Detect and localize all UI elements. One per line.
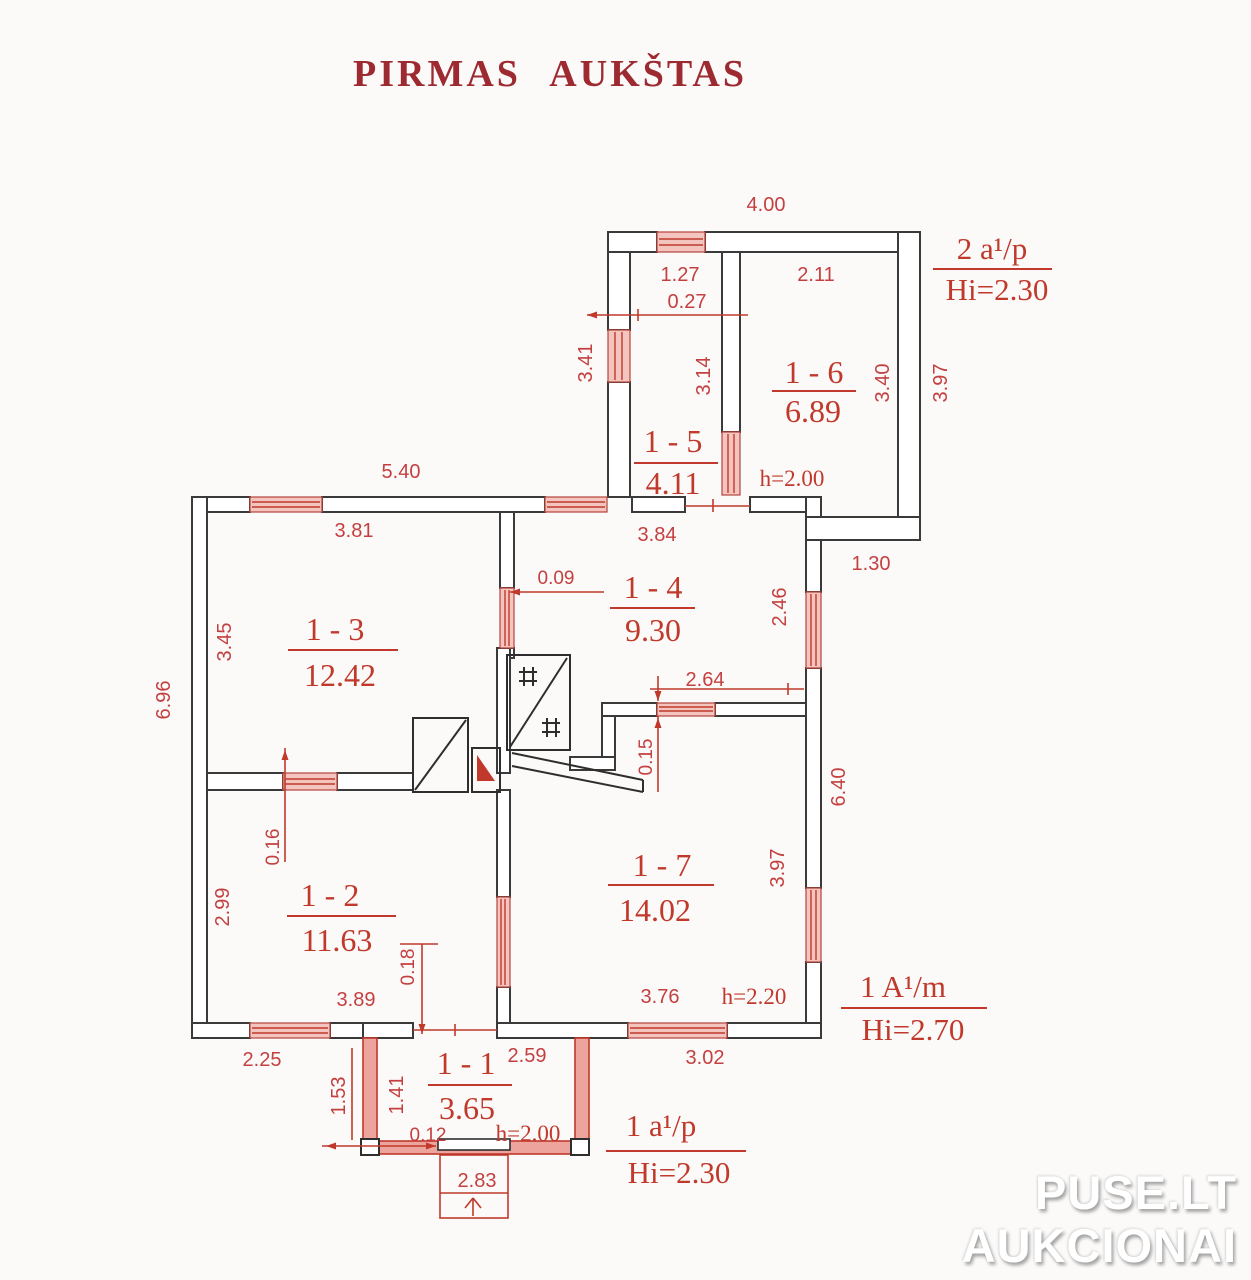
dim-1-41: 1.41 xyxy=(386,1076,408,1115)
dim-3-97-room7: 3.97 xyxy=(767,849,789,888)
dim-3-76: 3.76 xyxy=(641,986,680,1008)
dim-3-89: 3.89 xyxy=(337,989,376,1011)
dim-3-81: 3.81 xyxy=(335,520,374,542)
floorplan-drawing: 1 - 6 6.89 1 - 5 4.11 1 - 4 9.30 1 - 3 1… xyxy=(0,0,1251,1280)
dim-2-99: 2.99 xyxy=(212,888,234,927)
zone-main-height: Hi=2.70 xyxy=(862,1012,965,1047)
room-1-5-area: 4.11 xyxy=(646,465,701,501)
dim-2-64: 2.64 xyxy=(686,669,725,691)
dim-h-2-00-annex: h=2.00 xyxy=(760,466,825,491)
dim-5-40: 5.40 xyxy=(382,461,421,483)
dim-h-2-00-porch: h=2.00 xyxy=(496,1121,561,1146)
dim-3-84: 3.84 xyxy=(638,524,677,546)
page-title: PIRMAS AUKŠTAS xyxy=(0,52,1100,96)
dim-6-40: 6.40 xyxy=(828,768,850,807)
zone-porch-height: Hi=2.30 xyxy=(628,1155,731,1190)
dim-1-30: 1.30 xyxy=(852,553,891,575)
room-1-4-id: 1 - 4 xyxy=(624,569,683,605)
dim-2-11: 2.11 xyxy=(797,264,834,286)
room-1-7-area: 14.02 xyxy=(619,892,691,928)
room-1-1-area: 3.65 xyxy=(439,1090,495,1126)
dim-0-16: 0.16 xyxy=(263,829,284,866)
dim-2-83: 2.83 xyxy=(458,1170,497,1192)
dim-3-97-annex: 3.97 xyxy=(930,364,952,403)
room-1-3-id: 1 - 3 xyxy=(306,611,365,647)
watermark-line1: PUSE.LT xyxy=(962,1166,1237,1219)
dim-3-45: 3.45 xyxy=(214,623,236,662)
room-1-6-id: 1 - 6 xyxy=(785,354,844,390)
dim-4-00: 4.00 xyxy=(747,194,786,216)
dim-3-41: 3.41 xyxy=(575,344,597,383)
room-1-6-area: 6.89 xyxy=(785,393,841,429)
dim-0-15: 0.15 xyxy=(636,739,657,776)
dim-2-46: 2.46 xyxy=(769,588,791,627)
watermark-line2: AUKCIONAI xyxy=(962,1219,1237,1272)
room-1-2-id: 1 - 2 xyxy=(301,877,360,913)
dim-6-96: 6.96 xyxy=(153,681,175,720)
zone-main-label: 1 A¹/m xyxy=(860,969,946,1004)
dim-3-40: 3.40 xyxy=(872,364,894,403)
dim-1-27: 1.27 xyxy=(661,264,700,286)
zone-annex-label: 2 a¹/p xyxy=(957,231,1027,266)
room-1-1-id: 1 - 1 xyxy=(437,1045,496,1081)
room-1-4-area: 9.30 xyxy=(625,612,681,648)
dim-0-09: 0.09 xyxy=(538,568,575,589)
floorplan-page: PIRMAS AUKŠTAS xyxy=(0,0,1251,1280)
dim-0-18: 0.18 xyxy=(398,949,419,986)
dim-3-14: 3.14 xyxy=(693,357,715,396)
zone-porch-label: 1 a¹/p xyxy=(626,1108,696,1143)
dimension-labels: 4.00 1.27 0.27 2.11 3.41 3.14 3.40 3.97 … xyxy=(153,194,952,1192)
room-1-3-area: 12.42 xyxy=(304,657,376,693)
zone-annex-height: Hi=2.30 xyxy=(946,272,1049,307)
dim-2-25: 2.25 xyxy=(243,1049,282,1071)
dim-3-02: 3.02 xyxy=(686,1047,725,1069)
room-1-2-area: 11.63 xyxy=(302,922,373,958)
watermark: PUSE.LT AUKCIONAI xyxy=(962,1166,1237,1272)
dim-0-27: 0.27 xyxy=(668,291,707,313)
dim-h-2-20: h=2.20 xyxy=(722,984,787,1009)
stove-symbol xyxy=(413,655,570,792)
dim-0-12: 0.12 xyxy=(410,1125,447,1146)
dim-1-53: 1.53 xyxy=(328,1077,350,1116)
dim-2-59: 2.59 xyxy=(508,1045,547,1067)
room-1-5-id: 1 - 5 xyxy=(644,423,703,459)
room-1-7-id: 1 - 7 xyxy=(633,847,692,883)
